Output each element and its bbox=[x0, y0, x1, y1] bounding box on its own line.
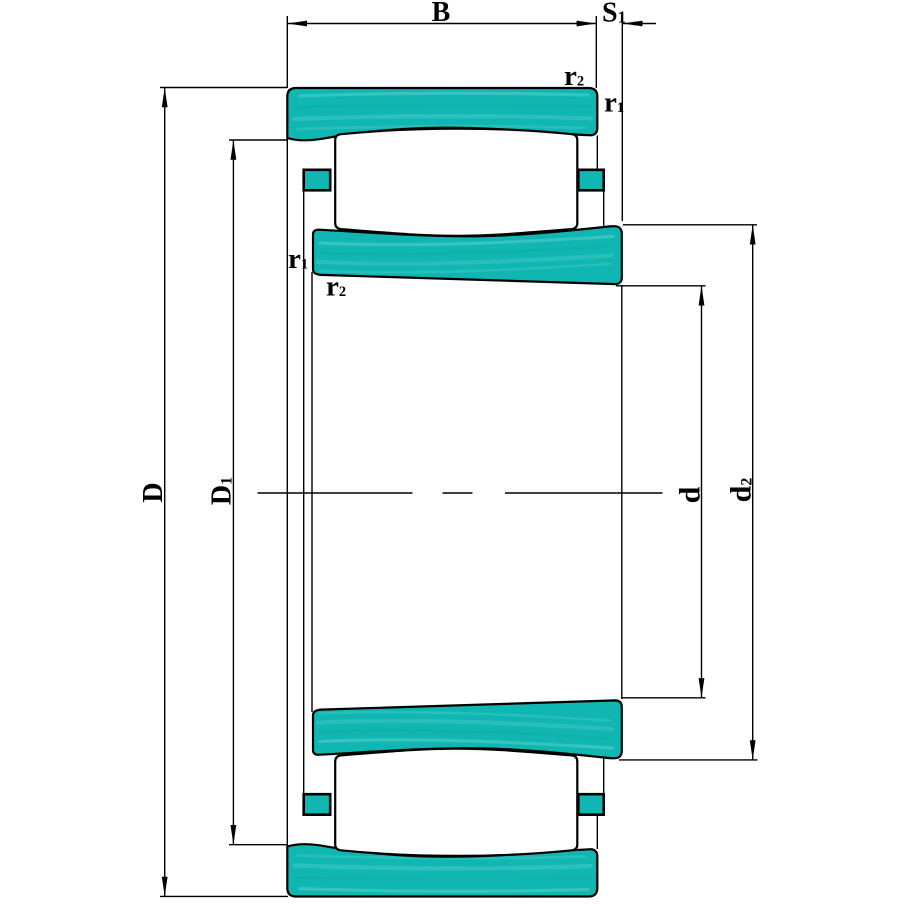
svg-text:d: d bbox=[674, 486, 707, 503]
svg-text:B: B bbox=[432, 0, 451, 28]
svg-text:D: D bbox=[138, 482, 169, 502]
